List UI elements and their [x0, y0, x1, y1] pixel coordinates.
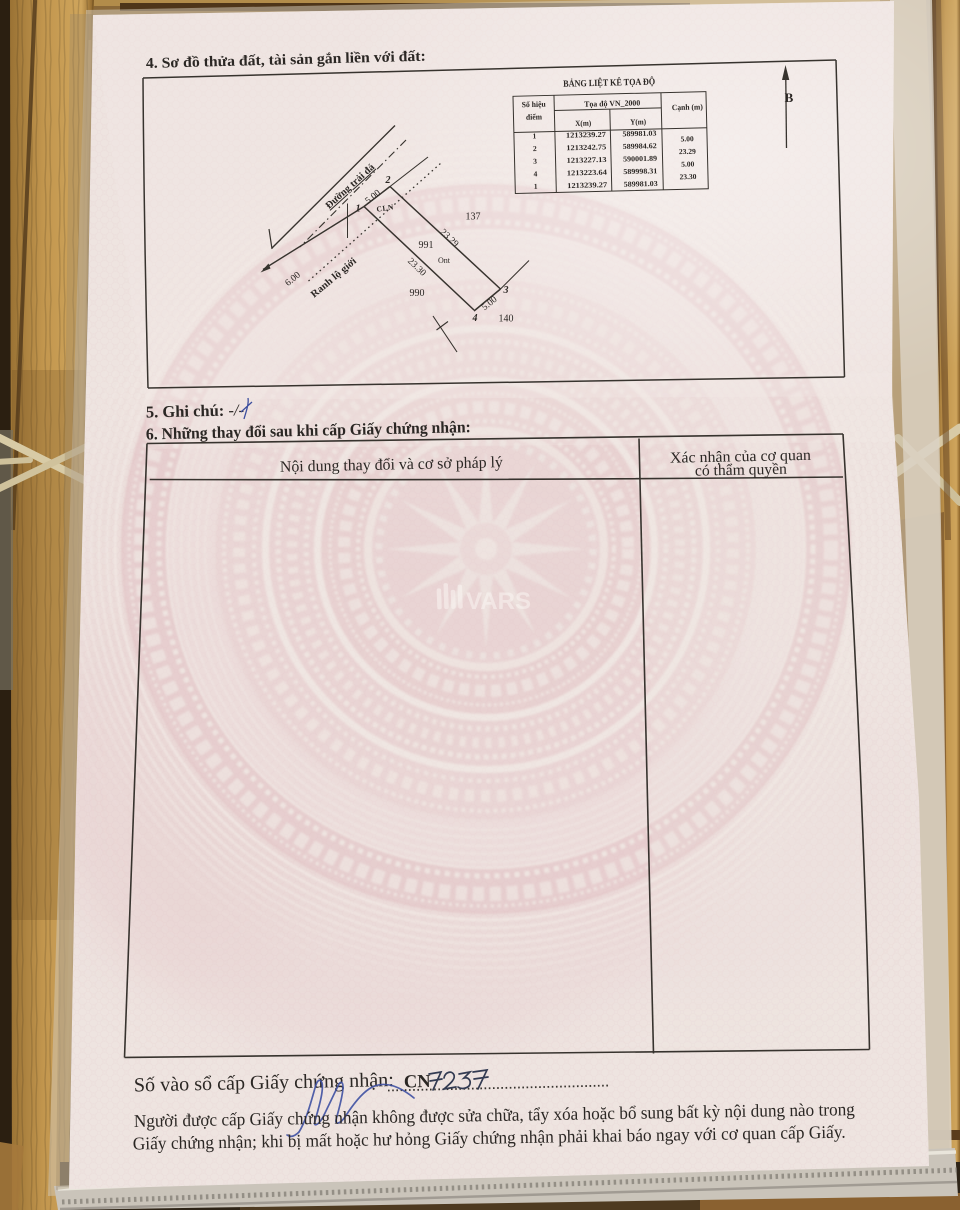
- svg-text:2: 2: [385, 175, 391, 186]
- svg-text:4: 4: [472, 313, 478, 324]
- svg-text:3: 3: [533, 157, 537, 166]
- svg-text:1213227.13: 1213227.13: [566, 155, 606, 165]
- svg-text:4: 4: [533, 169, 537, 178]
- svg-text:991: 991: [419, 240, 434, 251]
- svg-text:5.00: 5.00: [680, 134, 694, 143]
- svg-text:990: 990: [410, 288, 425, 299]
- svg-text:1: 1: [534, 182, 538, 191]
- svg-text:1: 1: [532, 131, 536, 140]
- svg-text:5. Ghi chú: -/-: 5. Ghi chú: -/-: [146, 400, 245, 421]
- svg-text:1213223.64: 1213223.64: [567, 168, 607, 178]
- svg-text:140: 140: [499, 314, 514, 325]
- svg-text:589981.03: 589981.03: [622, 129, 656, 139]
- svg-text:589984.62: 589984.62: [623, 141, 657, 151]
- svg-text:3: 3: [503, 285, 509, 296]
- svg-text:2: 2: [533, 144, 537, 153]
- svg-text:23.30: 23.30: [679, 172, 696, 181]
- svg-text:có thẩm quyền: có thẩm quyền: [695, 461, 788, 480]
- svg-text:1213242.75: 1213242.75: [566, 142, 606, 152]
- svg-text:1213239.27: 1213239.27: [567, 180, 607, 190]
- svg-text:B: B: [785, 90, 794, 105]
- svg-text:Y(m): Y(m): [630, 117, 647, 126]
- svg-text:Tọa độ VN_2000: Tọa độ VN_2000: [584, 98, 640, 108]
- svg-text:X(m): X(m): [575, 119, 592, 128]
- svg-text:Cạnh (m): Cạnh (m): [672, 102, 704, 112]
- svg-text:590001.89: 590001.89: [623, 154, 657, 164]
- svg-text:Ont: Ont: [438, 256, 451, 265]
- svg-text:137: 137: [466, 212, 481, 223]
- svg-text:23.29: 23.29: [679, 147, 696, 156]
- svg-text:Số hiệu: Số hiệu: [522, 100, 547, 110]
- svg-text:CN: CN: [404, 1072, 432, 1093]
- svg-text:1213239.27: 1213239.27: [566, 130, 606, 140]
- svg-text:điểm: điểm: [526, 112, 543, 121]
- svg-text:589998.31: 589998.31: [623, 166, 657, 176]
- svg-text:589981.03: 589981.03: [624, 179, 658, 189]
- svg-text:VARS: VARS: [466, 588, 531, 615]
- svg-text:1: 1: [356, 204, 361, 215]
- svg-text:5.00: 5.00: [681, 159, 695, 168]
